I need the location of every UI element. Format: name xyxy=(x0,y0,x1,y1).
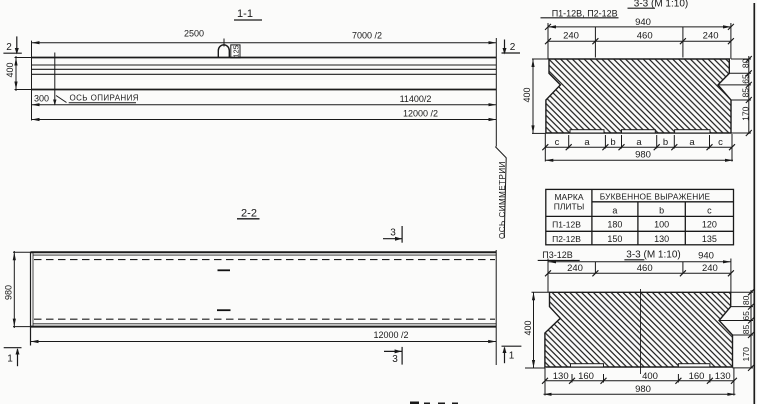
svg-text:460: 460 xyxy=(637,263,653,274)
svg-text:П1-12В: П1-12В xyxy=(552,220,581,230)
svg-text:135: 135 xyxy=(702,234,717,244)
svg-text:80: 80 xyxy=(741,58,751,68)
svg-text:120: 120 xyxy=(702,220,717,230)
svg-text:130: 130 xyxy=(553,371,569,382)
svg-text:150: 150 xyxy=(607,234,622,244)
svg-text:П1-12В, П2-12В: П1-12В, П2-12В xyxy=(552,9,618,19)
svg-text:ПЛИТЫ: ПЛИТЫ xyxy=(554,202,585,212)
svg-text:2-2: 2-2 xyxy=(241,208,257,220)
svg-text:12000 /2: 12000 /2 xyxy=(403,109,438,119)
svg-text:130: 130 xyxy=(715,371,731,382)
svg-text:a: a xyxy=(612,206,617,216)
svg-text:980: 980 xyxy=(4,285,14,300)
svg-text:1: 1 xyxy=(509,351,515,362)
svg-text:a: a xyxy=(584,137,590,148)
svg-text:300: 300 xyxy=(34,94,49,104)
svg-text:a: a xyxy=(689,137,695,148)
svg-text:3-3 (М 1:10): 3-3 (М 1:10) xyxy=(626,250,680,261)
svg-text:c: c xyxy=(707,206,712,216)
svg-text:12000 /2: 12000 /2 xyxy=(373,330,408,340)
svg-text:ОСЬ СИММЕТРИИ: ОСЬ СИММЕТРИИ xyxy=(498,161,507,239)
svg-text:a: a xyxy=(636,137,642,148)
svg-text:400: 400 xyxy=(522,87,532,102)
svg-text:240: 240 xyxy=(563,31,579,42)
svg-text:125: 125 xyxy=(232,45,241,58)
svg-text:7000 /2: 7000 /2 xyxy=(352,31,382,41)
svg-text:b: b xyxy=(610,137,615,148)
svg-text:170: 170 xyxy=(741,347,751,362)
svg-text:100: 100 xyxy=(654,220,669,230)
svg-text:1-1: 1-1 xyxy=(237,8,253,20)
svg-text:80: 80 xyxy=(741,295,751,305)
svg-text:2: 2 xyxy=(6,42,12,53)
svg-text:400: 400 xyxy=(5,62,15,77)
svg-text:П3-12В: П3-12В xyxy=(542,250,573,260)
svg-text:ОСЬ ОПИРАНИЯ: ОСЬ ОПИРАНИЯ xyxy=(70,94,139,103)
svg-text:130: 130 xyxy=(654,234,669,244)
svg-text:3: 3 xyxy=(392,354,398,365)
svg-text:85: 85 xyxy=(741,88,751,98)
svg-text:c: c xyxy=(718,137,723,148)
svg-text:240: 240 xyxy=(703,31,719,42)
svg-text:c: c xyxy=(555,137,560,148)
svg-text:b: b xyxy=(659,206,664,216)
svg-text:180: 180 xyxy=(607,220,622,230)
svg-text:160: 160 xyxy=(578,371,594,382)
svg-text:65: 65 xyxy=(741,74,751,84)
svg-text:170: 170 xyxy=(741,106,751,121)
svg-text:460: 460 xyxy=(637,31,653,42)
svg-text:940: 940 xyxy=(635,17,651,28)
svg-text:940: 940 xyxy=(698,251,714,262)
svg-text:400: 400 xyxy=(523,320,533,335)
svg-text:МАРКА: МАРКА xyxy=(554,192,583,202)
svg-text:400: 400 xyxy=(642,371,658,382)
svg-text:65: 65 xyxy=(741,311,751,321)
svg-text:БУКВЕННОЕ ВЫРАЖЕНИЕ: БУКВЕННОЕ ВЫРАЖЕНИЕ xyxy=(600,192,711,202)
svg-text:160: 160 xyxy=(689,371,705,382)
svg-text:980: 980 xyxy=(635,150,651,161)
svg-text:980: 980 xyxy=(635,384,651,395)
svg-text:85: 85 xyxy=(741,325,751,335)
svg-text:2: 2 xyxy=(510,42,516,53)
svg-text:1: 1 xyxy=(7,354,13,365)
svg-text:240: 240 xyxy=(702,263,718,274)
svg-text:b: b xyxy=(663,137,668,148)
svg-text:11400/2: 11400/2 xyxy=(400,94,432,104)
svg-text:П2-12В: П2-12В xyxy=(552,234,581,244)
svg-text:2500: 2500 xyxy=(184,29,204,39)
svg-text:240: 240 xyxy=(567,263,583,274)
